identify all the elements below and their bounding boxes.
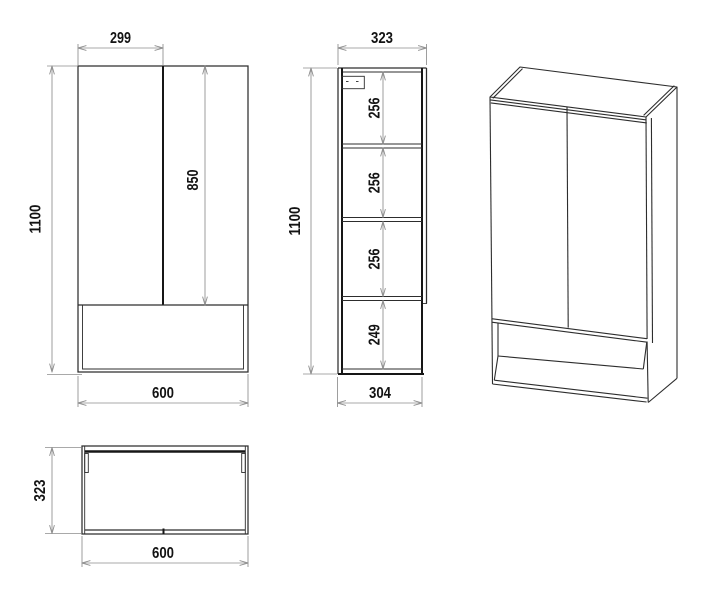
iso-door-bottom-edge bbox=[492, 319, 648, 339]
iso-front-left-edge bbox=[490, 97, 493, 384]
side-section1-dim: 256 bbox=[367, 97, 384, 118]
plan-cabinet-outline bbox=[82, 446, 248, 534]
iso-front-right-edge bbox=[646, 117, 647, 339]
side-section4-dim: 249 bbox=[367, 324, 384, 345]
plan-dimensions: 323 600 bbox=[32, 448, 248, 568]
side-height-dim: 1100 bbox=[287, 206, 304, 235]
side-mount-bracket bbox=[342, 76, 365, 88]
side-section3-dim: 256 bbox=[367, 248, 384, 269]
side-view: 323 256 256 256 249 1100 304 bbox=[287, 30, 427, 407]
isometric-view bbox=[490, 67, 677, 403]
side-shelf-lines bbox=[342, 144, 422, 301]
side-depth-dim: 323 bbox=[371, 30, 393, 47]
plan-left-hinge bbox=[85, 454, 89, 473]
plan-right-hinge bbox=[242, 454, 246, 473]
cabinet-drawing: 299 1100 850 600 bbox=[0, 0, 711, 600]
front-door-height-dim: 850 bbox=[185, 169, 202, 190]
side-section2-dim: 256 bbox=[367, 172, 384, 193]
front-view: 299 1100 850 600 bbox=[28, 30, 249, 407]
plan-depth-dim: 323 bbox=[32, 479, 49, 501]
front-dimensions: 299 1100 850 600 bbox=[28, 30, 249, 407]
plan-width-dim: 600 bbox=[152, 545, 174, 562]
front-cabinet-outline bbox=[78, 66, 248, 372]
front-niche-inner-lines bbox=[83, 305, 244, 369]
side-body-depth-dim: 304 bbox=[369, 385, 391, 402]
front-width-dim: 600 bbox=[152, 385, 174, 402]
technical-drawing-canvas: 299 1100 850 600 bbox=[0, 0, 711, 600]
front-door-width-dim: 299 bbox=[110, 30, 131, 47]
iso-niche-lines bbox=[493, 323, 648, 402]
plan-view: 323 600 bbox=[32, 446, 248, 567]
front-height-dim: 1100 bbox=[28, 204, 45, 233]
iso-door-split-line bbox=[567, 107, 568, 328]
side-dimensions: 323 256 256 256 249 1100 304 bbox=[287, 30, 427, 407]
